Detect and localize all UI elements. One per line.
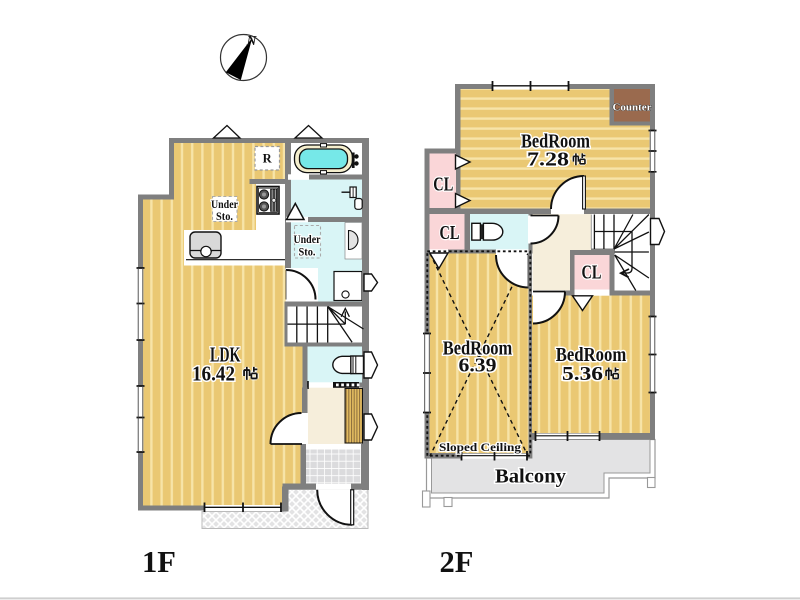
svg-text:2F: 2F: [440, 545, 474, 579]
svg-text:Sto.: Sto.: [299, 247, 316, 259]
svg-text:R: R: [263, 152, 273, 166]
svg-text:1F: 1F: [142, 545, 176, 579]
svg-text:Under: Under: [294, 234, 321, 246]
svg-text:6.39: 6.39: [459, 356, 497, 377]
svg-text:Under: Under: [211, 199, 238, 211]
svg-text:7.28: 7.28: [527, 150, 569, 171]
svg-text:CL: CL: [440, 223, 460, 244]
svg-text:Balcony: Balcony: [495, 467, 566, 488]
svg-text:N: N: [246, 33, 258, 48]
svg-text:CL: CL: [582, 262, 602, 283]
svg-text:Sloped Ceiling: Sloped Ceiling: [439, 440, 521, 454]
svg-text:5.36: 5.36: [562, 364, 603, 385]
svg-text:Counter: Counter: [613, 103, 652, 114]
svg-text:CL: CL: [433, 175, 453, 196]
svg-text:BedRoom: BedRoom: [556, 345, 627, 366]
svg-text:16.42: 16.42: [192, 362, 235, 386]
svg-text:Sto.: Sto.: [216, 211, 233, 223]
